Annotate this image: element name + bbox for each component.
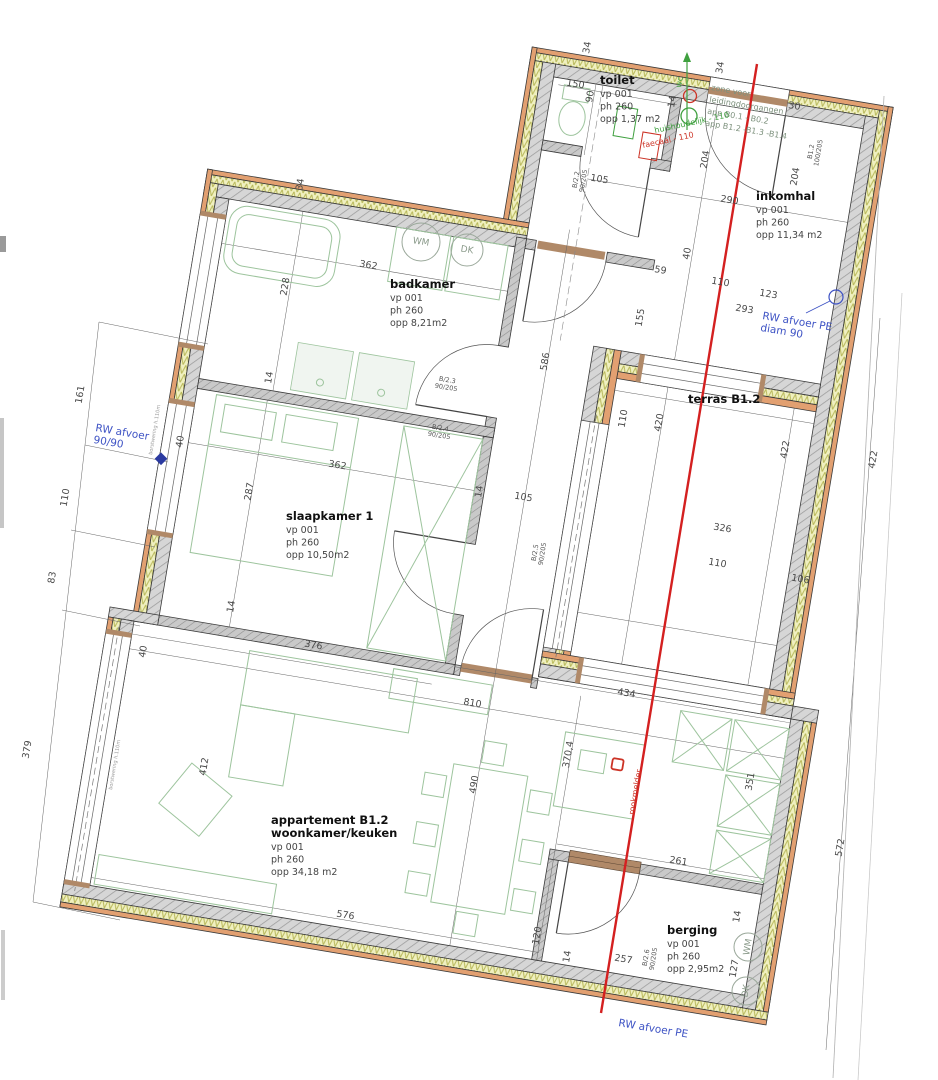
- room-attribute: vp 001: [756, 205, 789, 216]
- dimension-label: 810: [463, 697, 483, 711]
- dimension-label: 14: [561, 950, 574, 964]
- room-attribute: vp 001: [271, 842, 304, 853]
- washbasin: [352, 353, 415, 410]
- dimension-label: 110: [708, 557, 728, 571]
- dimension-label: 362: [328, 459, 348, 473]
- dimension-label: 379: [21, 740, 35, 760]
- door-code-label: 100/205: [812, 139, 824, 167]
- room-attribute: opp 10,50m2: [286, 550, 349, 561]
- dimension-label: 123: [759, 288, 779, 302]
- room-attribute: opp 1,37 m2: [600, 114, 660, 125]
- dimension-label: 14: [666, 95, 679, 109]
- dimension-label: 110: [711, 276, 731, 290]
- scan-artifacts: [0, 236, 6, 1000]
- room-name: toilet: [600, 73, 635, 87]
- note-wc: wc: [674, 76, 685, 88]
- dimension-label: 150: [566, 78, 586, 92]
- room-attribute: ph 260: [390, 306, 423, 317]
- dimension-label: 293: [735, 303, 755, 317]
- room-attribute: opp 2,95m2: [667, 964, 724, 975]
- appliance-label: WM: [412, 236, 430, 249]
- dimension-label: 420: [653, 413, 667, 433]
- dimension-label: 261: [669, 855, 689, 869]
- room-attribute: opp 8,21m2: [390, 318, 447, 329]
- dimension-label: 90: [584, 90, 597, 104]
- room-attribute: ph 260: [600, 102, 633, 113]
- room-name: berging: [667, 923, 717, 937]
- dimension-label: 34: [581, 41, 594, 55]
- dimension-label: 204: [789, 167, 803, 187]
- dimension-label: 83: [46, 571, 59, 585]
- dimension-label: 362: [359, 259, 379, 273]
- dimension-label: 30: [788, 100, 802, 113]
- dimension-label: 490: [468, 775, 482, 795]
- note-rw_bottom: RW afvoer PE: [618, 1017, 689, 1040]
- dimension-label: 14: [225, 600, 238, 614]
- room-attribute: ph 260: [271, 855, 304, 866]
- pipe-arrow: [683, 52, 691, 62]
- room-name: appartement B1.2: [271, 813, 389, 827]
- dimension-label: 105: [590, 173, 610, 187]
- appliance-label: DK: [460, 245, 475, 257]
- dimension-label: 422: [779, 440, 793, 460]
- room-attribute: ph 260: [286, 538, 319, 549]
- dimension-label: 326: [713, 522, 733, 536]
- room-attribute: vp 001: [390, 293, 423, 304]
- floor-plan-page: 36222834143622871437640412810370,4490576…: [0, 0, 938, 1080]
- room-attribute: ph 260: [667, 952, 700, 963]
- dimension-label: 14: [473, 485, 486, 499]
- dimension-label: 161: [74, 385, 88, 405]
- room-attribute: ph 260: [756, 218, 789, 229]
- room-attribute: opp 34,18 m2: [271, 867, 337, 878]
- dimension-label: 14: [731, 910, 744, 924]
- dimension-label: 572: [834, 838, 848, 858]
- note-rookmelder: rookmelder: [627, 768, 644, 815]
- rookmelder-symbol: [611, 758, 624, 771]
- dimension-label: 257: [614, 953, 634, 967]
- plan-rotated: [60, 0, 919, 1025]
- dimension-label: 576: [336, 909, 356, 923]
- dimension-label: 412: [198, 757, 212, 777]
- window-living-sliding: [64, 633, 131, 886]
- dimension-label: 34: [714, 61, 727, 75]
- dimension-label: 40: [681, 247, 694, 261]
- lounge-chair: [159, 763, 232, 836]
- dimension-label: 40: [174, 435, 187, 449]
- walls-exterior: [60, 0, 919, 1025]
- window-badkamer: [179, 214, 226, 347]
- room-name: woonkamer/keuken: [271, 826, 397, 840]
- dimension-label: 434: [617, 687, 637, 701]
- door-arc-b26: [556, 862, 639, 945]
- room-attribute: vp 001: [286, 525, 319, 536]
- dimension-label: 228: [279, 277, 293, 297]
- dimension-label: 422: [867, 450, 881, 470]
- dimension-label: 59: [654, 264, 668, 277]
- dimension-label: 586: [539, 352, 553, 372]
- room-attribute: vp 001: [600, 89, 633, 100]
- dimension-label: 351: [744, 772, 758, 792]
- dimension-label: 40: [137, 645, 150, 659]
- dimension-label: 34: [294, 178, 307, 192]
- door-arc-toilet: [569, 156, 650, 237]
- room-attribute: opp 11,34 m2: [756, 230, 822, 241]
- dimension-label: 287: [243, 482, 257, 502]
- dimension-label: 127: [728, 959, 742, 979]
- dimension-label: 110: [59, 488, 73, 508]
- room-attribute: vp 001: [667, 939, 700, 950]
- door-arc-b24: [383, 531, 466, 614]
- note-borstwering1: borstwering h.110m: [148, 404, 162, 455]
- dimension-label: 105: [514, 491, 534, 505]
- door-leaf-front: [772, 116, 785, 195]
- dimension-label: 110: [617, 409, 631, 429]
- dimension-label: 204: [699, 150, 713, 170]
- room-name: badkamer: [390, 277, 455, 291]
- room-name: terras B1.2: [688, 392, 760, 406]
- floor-plan-drawing: 36222834143622871437640412810370,4490576…: [0, 0, 938, 1080]
- door-arc-b23: [416, 334, 499, 417]
- dimension-label: 14: [263, 371, 276, 385]
- washbasin: [290, 342, 353, 399]
- room-name: slaapkamer 1: [286, 509, 373, 523]
- window-living-terras: [579, 658, 766, 714]
- dimension-label: 290: [720, 194, 740, 208]
- dimension-label: 155: [634, 308, 648, 328]
- room-name: inkomhal: [756, 189, 815, 203]
